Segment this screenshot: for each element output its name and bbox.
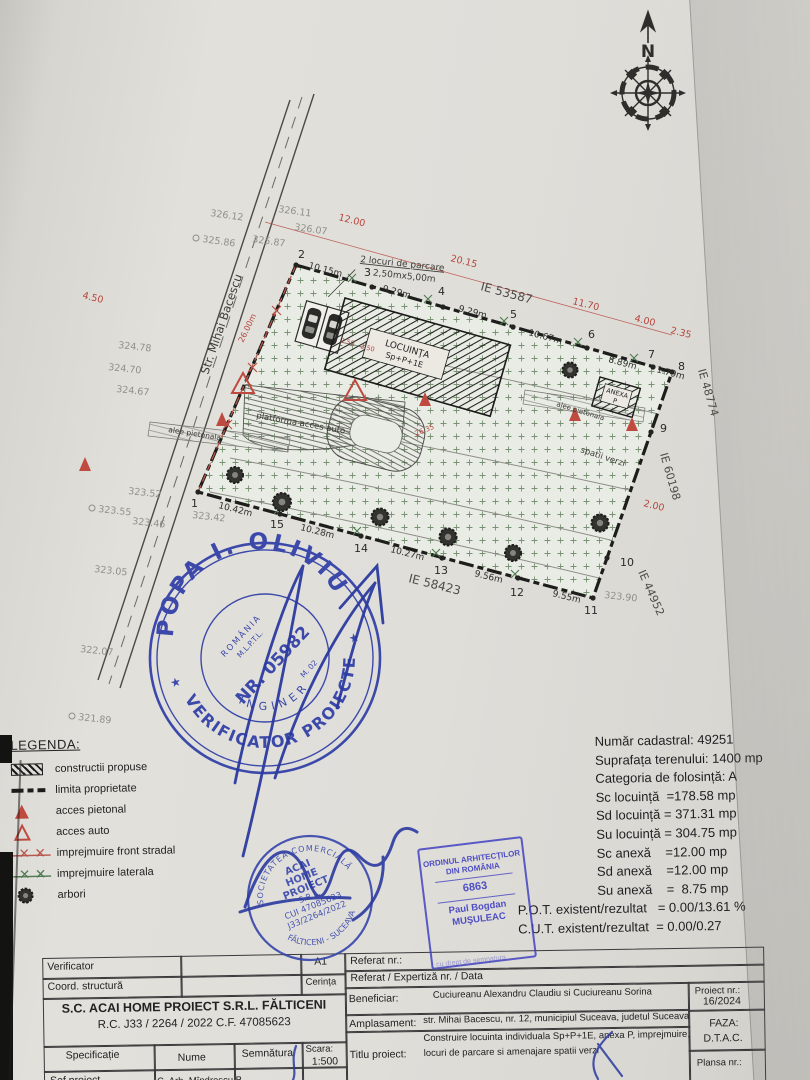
legend-item-label: acces pietonal <box>56 803 127 816</box>
elevation-label: 321.89 <box>78 712 112 726</box>
elevation-label: 324.70 <box>108 362 142 376</box>
nume-label: Nume <box>178 1051 206 1063</box>
point-number: 1 <box>191 497 198 510</box>
point-number: 3 <box>364 266 371 279</box>
point-number: 13 <box>434 564 448 577</box>
dim-label: 20.15 <box>449 253 478 270</box>
stamp-name-arc: POPA I. OLIVIU <box>133 507 355 644</box>
compass-rose: N <box>598 5 698 135</box>
elevation-label: 323.42 <box>192 510 226 524</box>
legend-item-label: limita proprietate <box>55 782 137 796</box>
titlu-proiect-label: Titlu proiect: <box>350 1048 407 1061</box>
elevation-marker <box>89 505 95 511</box>
point-number: 4 <box>438 285 445 298</box>
parcel-label: IE 60198 <box>657 451 683 501</box>
point-number: 10 <box>620 556 634 569</box>
verifier-stamp: POPA I. OLIVIU VERIFICATOR PROIECTE INGI… <box>135 528 395 858</box>
elevation-label: 323.52 <box>128 486 162 500</box>
elevation-marker <box>193 235 199 241</box>
legend-item-label: constructii propuse <box>55 761 148 775</box>
dim-label: 2.35 <box>669 325 692 341</box>
sef-proiect-label: Șef proiect <box>50 1074 100 1080</box>
point-number: 9 <box>660 422 667 435</box>
compass-wheel <box>610 55 686 131</box>
plansa-nr-label: Plansa nr.: <box>697 1057 742 1069</box>
faza-label: FAZA: <box>709 1017 738 1029</box>
dim-label: 12.00 <box>337 212 366 229</box>
elevation-label: 323.05 <box>94 564 128 578</box>
proposed-construction-icon <box>11 762 55 775</box>
semnatura-label: Semnătura <box>242 1047 294 1060</box>
parcel-label: IE 44952 <box>635 568 667 618</box>
elevation-label: 324.78 <box>118 340 152 354</box>
dim-label: 4.50 <box>81 290 104 306</box>
specificatie-label: Specificație <box>66 1049 120 1062</box>
svg-text:POPA I. OLIVIU: POPA I. OLIVIU <box>133 507 355 644</box>
elevation-marker <box>69 713 75 719</box>
elevation-label: 324.67 <box>116 384 150 398</box>
dim-label: 2.00 <box>642 498 665 514</box>
coord-structura-label: Coord. structură <box>48 980 123 993</box>
dim-label: 4.00 <box>633 313 656 329</box>
handwritten-signature <box>235 812 445 942</box>
elevation-label: 323.55 <box>98 504 132 518</box>
elevation-label: 326.11 <box>278 204 312 220</box>
legend-item-label: arbori <box>57 888 85 901</box>
scanned-sheet: Str. Mihai Bacescu <box>0 0 810 1080</box>
architect-stamp: ORDINUL ARHITECŢILOR DIN ROMÂNIA 6863 Pa… <box>417 836 537 970</box>
stamp-star: ★ <box>169 674 183 690</box>
sef-proiect-name: C. Arh. Mîndrescu B. <box>157 1075 245 1080</box>
point-number: 7 <box>648 348 655 361</box>
point-number: 11 <box>584 604 598 617</box>
dim-label: 26.00m <box>237 312 259 344</box>
scan-edge-mark <box>0 735 12 763</box>
beneficiar-label: Beneficiar: <box>349 992 399 1005</box>
point-number: 6 <box>588 328 595 341</box>
elevation-label: 323.90 <box>604 590 638 604</box>
tree-icon <box>13 884 57 905</box>
elevation-label: 325.87 <box>252 234 286 250</box>
parcel-label: IE 53587 <box>479 279 534 306</box>
legend-item-label: imprejmuire laterala <box>57 865 154 879</box>
legend-item: arbori <box>13 881 193 906</box>
elevation-label: 325.86 <box>202 234 236 250</box>
elevation-label: 326.07 <box>294 222 328 238</box>
faza-value: D.T.A.C. <box>703 1032 742 1045</box>
point-number: 5 <box>510 308 517 321</box>
proiect-nr-value: 16/2024 <box>703 995 741 1008</box>
point-number: 8 <box>678 360 685 373</box>
elevation-label: 326.12 <box>210 208 244 224</box>
amplasament-label: Amplasament: <box>349 1017 416 1030</box>
legend-item-label: acces auto <box>56 824 109 837</box>
scara-label: Scara: <box>306 1043 334 1054</box>
scara-value: 1:500 <box>312 1055 338 1067</box>
verificator-label: Verificator <box>47 960 94 973</box>
point-number: 2 <box>298 248 305 261</box>
street-name-label: Str. Mihai Bacescu <box>198 272 245 376</box>
lateral-fence-icon <box>13 866 57 881</box>
elevation-label: 322.07 <box>80 644 114 658</box>
point-number: 12 <box>510 586 524 599</box>
street-fence-icon <box>13 845 57 860</box>
